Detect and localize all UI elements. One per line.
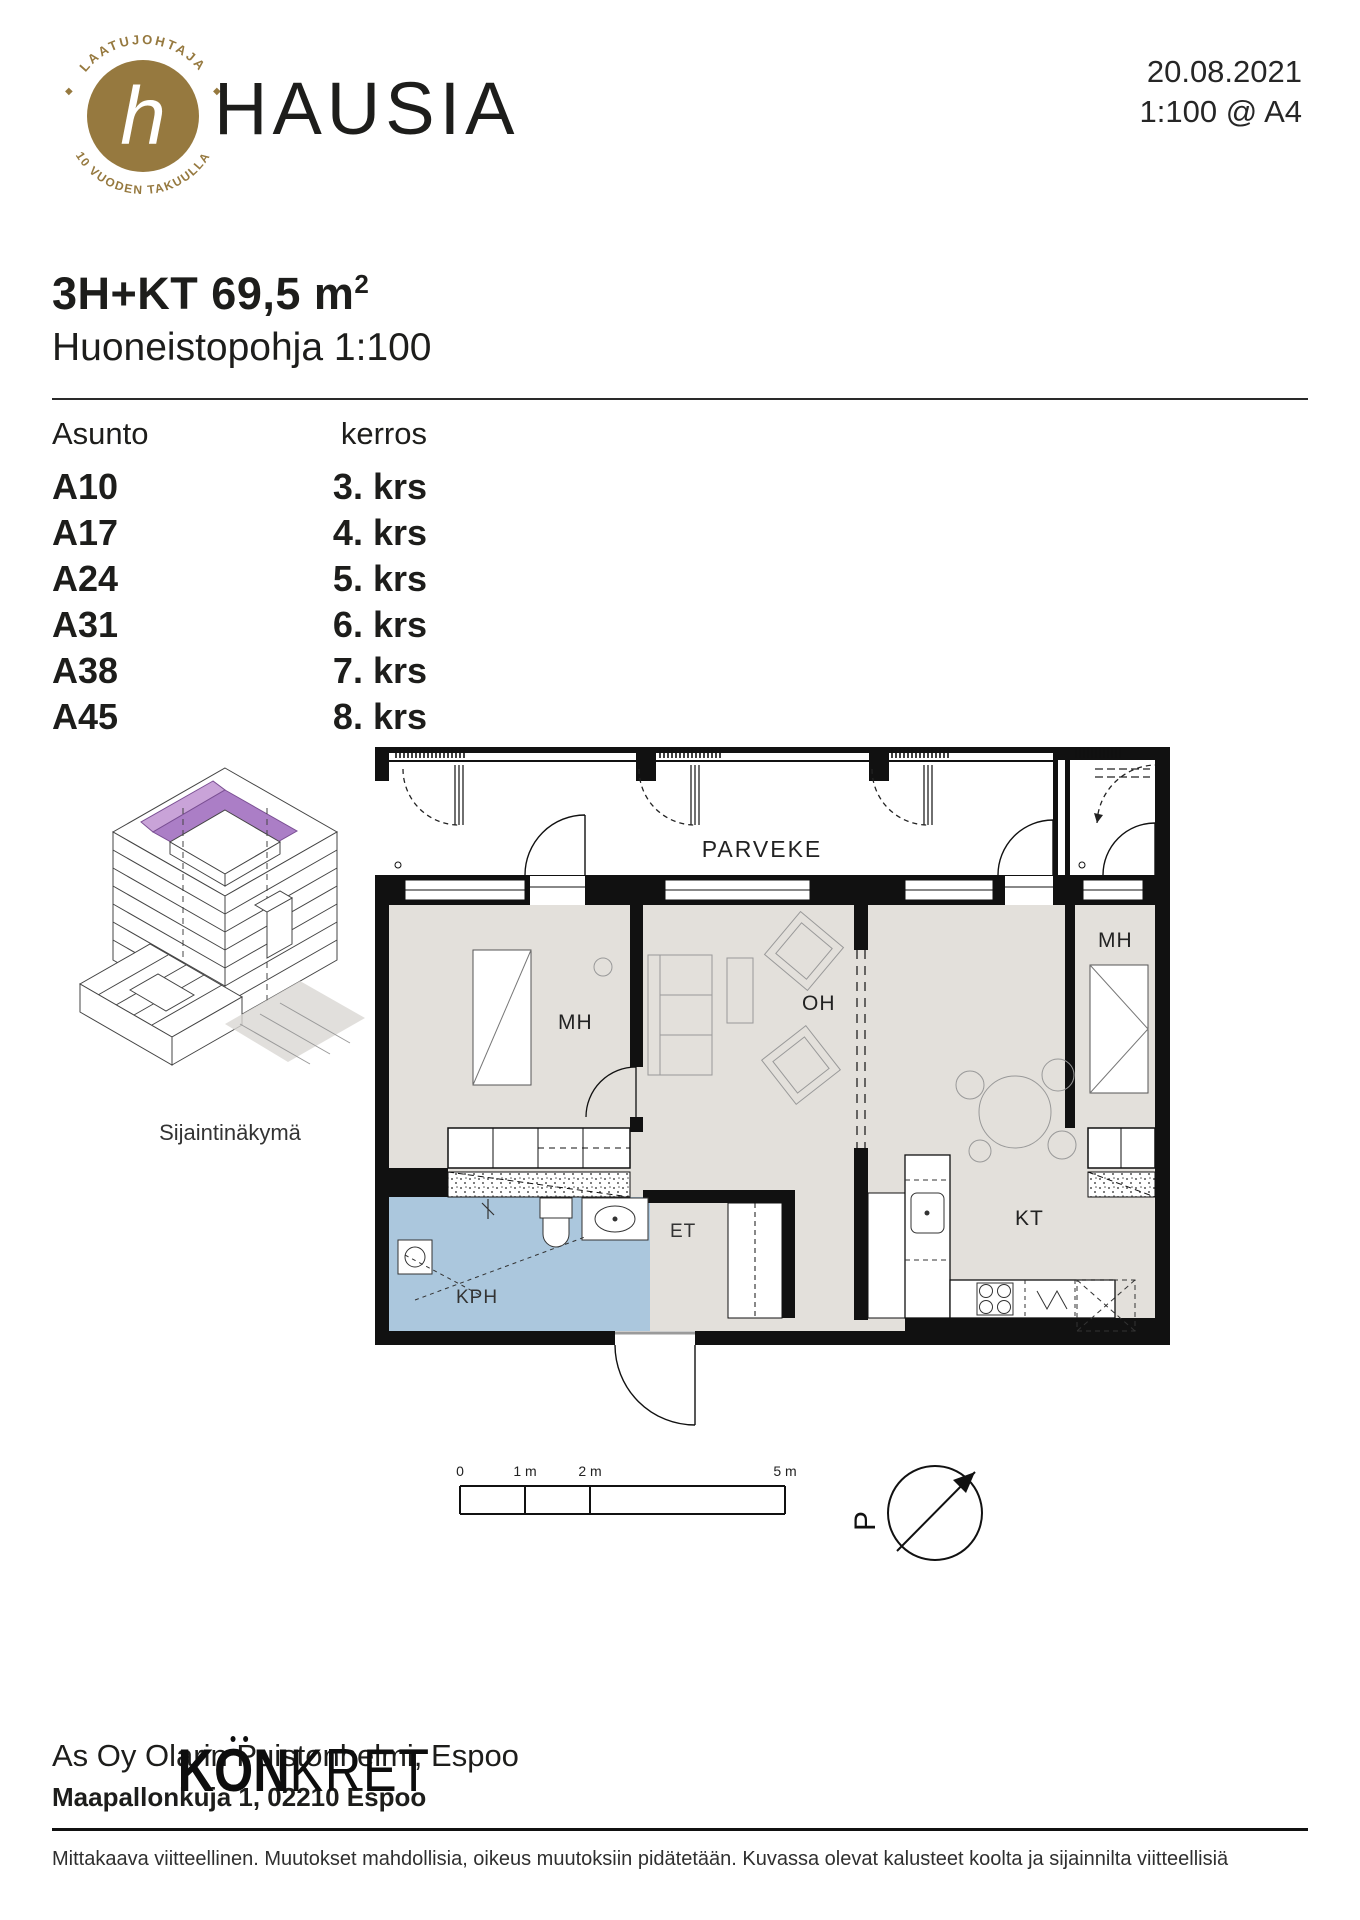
scale-tick-label: 0 xyxy=(456,1463,464,1479)
umlaut-dots xyxy=(231,1736,249,1742)
star-icon: ◆ xyxy=(65,86,73,97)
floorplan-sheet: h LAATUJOHTAJA 10 VUODEN TAKUULLA ◆ ◆ HA… xyxy=(0,0,1360,1920)
entry-closet xyxy=(868,1193,905,1318)
table-row: A38 7. krs xyxy=(52,648,432,694)
unit-floor-table: Asunto kerros A10 3. krs A17 4. krs A24 … xyxy=(52,416,432,740)
unit-id: A45 xyxy=(52,696,252,738)
unit-id: A31 xyxy=(52,604,252,646)
col-header-apartment: Asunto xyxy=(52,416,252,452)
location-axonometric-view xyxy=(70,752,380,1112)
unit-floor: 5. krs xyxy=(252,558,427,600)
konkret-logo-bold: KON xyxy=(178,1736,290,1805)
print-scale: 1:100 @ A4 xyxy=(1140,92,1302,132)
table-row: A17 4. krs xyxy=(52,510,432,556)
room-label-kph: KPH xyxy=(456,1287,498,1308)
room-label-mh-left: MH xyxy=(558,1011,593,1034)
konkret-logo-light: KRET xyxy=(290,1736,431,1805)
room-label-et: ET xyxy=(670,1221,696,1242)
table-row: A31 6. krs xyxy=(52,602,432,648)
room-label-parveke: PARVEKE xyxy=(702,836,823,862)
table-row: A45 8. krs xyxy=(52,694,432,740)
brand-wordmark: HAUSIA xyxy=(214,66,520,151)
unit-id: A24 xyxy=(52,558,252,600)
unit-floor: 7. krs xyxy=(252,650,427,692)
room-label-kt: KT xyxy=(1015,1207,1044,1230)
print-date: 20.08.2021 xyxy=(1140,52,1302,92)
logo-monogram: h xyxy=(120,71,166,162)
scale-tick-label: 2 m xyxy=(578,1463,601,1479)
location-view-caption: Sijaintinäkymä xyxy=(90,1120,370,1146)
bed-left xyxy=(473,950,531,1085)
wardrobe-left xyxy=(448,1128,630,1197)
unit-id: A10 xyxy=(52,466,252,508)
unit-floor: 6. krs xyxy=(252,604,427,646)
bed-right xyxy=(1090,965,1148,1093)
room-label-oh: OH xyxy=(802,992,836,1015)
divider-line xyxy=(52,398,1308,400)
apartment-type-text: 3H+KT 69,5 m xyxy=(52,268,354,319)
unit-id: A38 xyxy=(52,650,252,692)
konkret-logo: KON KRET xyxy=(178,1736,1320,1805)
col-header-floor: kerros xyxy=(252,416,427,452)
north-compass: P xyxy=(845,1445,1015,1585)
hausia-logo: h LAATUJOHTAJA 10 VUODEN TAKUULLA ◆ ◆ xyxy=(48,28,238,198)
plan-subtitle: Huoneistopohja 1:100 xyxy=(52,326,431,370)
balcony-doors xyxy=(525,815,1155,875)
apartment-type-title: 3H+KT 69,5 m2 xyxy=(52,268,369,320)
date-scale-block: 20.08.2021 1:100 @ A4 xyxy=(1140,52,1302,132)
entrance-door xyxy=(615,1331,695,1425)
room-label-mh-right: MH xyxy=(1098,929,1133,952)
unit-floor: 4. krs xyxy=(252,512,427,554)
unit-id: A17 xyxy=(52,512,252,554)
scale-bar: 0 1 m 2 m 5 m xyxy=(445,1462,805,1524)
footer-divider-line xyxy=(52,1828,1308,1831)
kitchen-sink-column xyxy=(905,1155,950,1318)
north-label: P xyxy=(849,1511,882,1531)
wardrobe-right xyxy=(1088,1128,1155,1197)
table-row: A10 3. krs xyxy=(52,464,432,510)
table-row: A24 5. krs xyxy=(52,556,432,602)
scale-tick-label: 1 m xyxy=(513,1463,536,1479)
unit-floor: 3. krs xyxy=(252,466,427,508)
disclaimer-text: Mittakaava viitteellinen. Muutokset mahd… xyxy=(52,1848,1322,1871)
scale-tick-label: 5 m xyxy=(773,1463,796,1479)
table-header-row: Asunto kerros xyxy=(52,416,432,452)
square-exponent: 2 xyxy=(354,269,369,299)
unit-floor: 8. krs xyxy=(252,696,427,738)
kitchen-counter xyxy=(950,1280,1115,1318)
floor-plan-drawing: PARVEKE xyxy=(360,735,1180,1465)
balcony-door-arcs xyxy=(403,765,1155,825)
